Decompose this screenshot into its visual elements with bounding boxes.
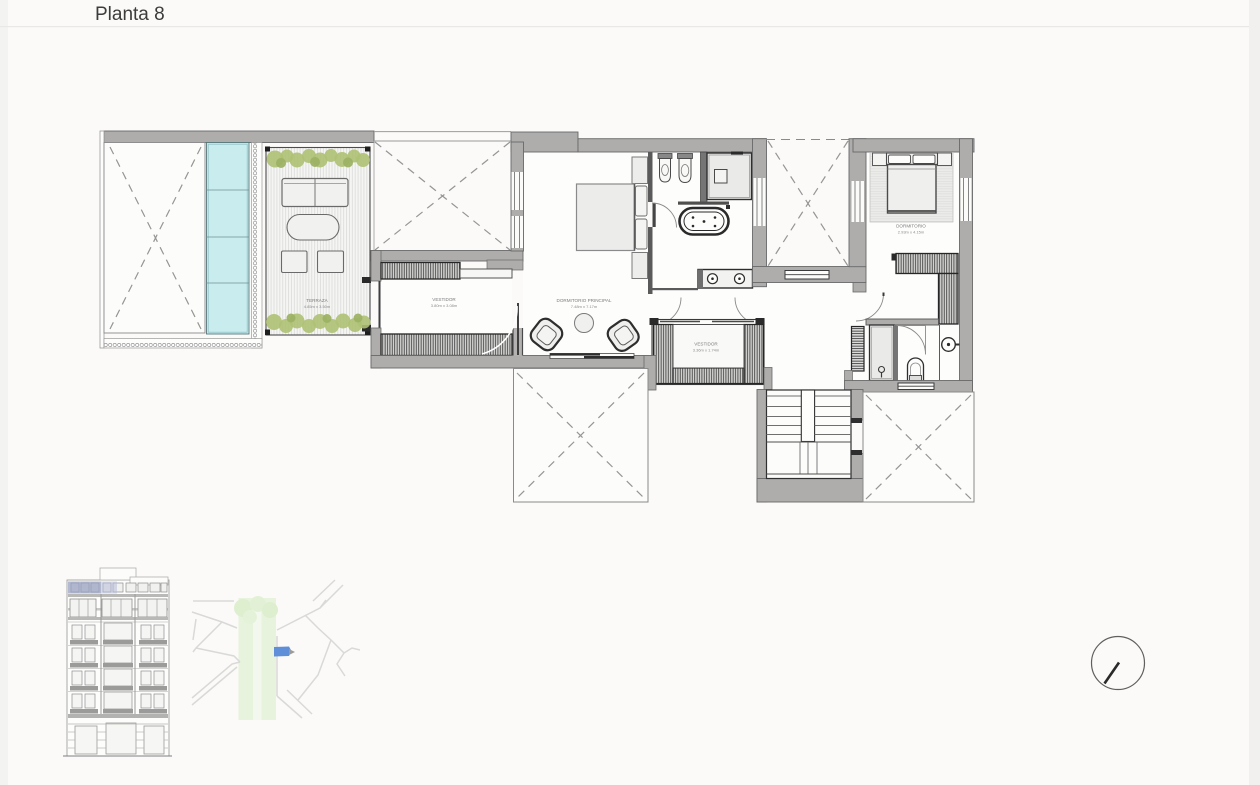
svg-text:3.80m x 3.08m: 3.80m x 3.08m <box>431 303 458 308</box>
svg-text:VESTIDOR: VESTIDOR <box>694 342 718 347</box>
svg-text:TERRAZA: TERRAZA <box>306 298 328 303</box>
svg-text:Planta 8: Planta 8 <box>95 4 165 25</box>
svg-text:DORMITORIO: DORMITORIO <box>896 224 926 229</box>
svg-text:4.85m x 3.50m: 4.85m x 3.50m <box>304 304 331 309</box>
svg-text:7.48m x 7.17m: 7.48m x 7.17m <box>571 304 598 309</box>
svg-text:2.93m x 4.15m: 2.93m x 4.15m <box>898 230 925 235</box>
svg-text:3.36m x 1.74m: 3.36m x 1.74m <box>693 348 720 353</box>
svg-text:DORMITORIO PRINCIPAL: DORMITORIO PRINCIPAL <box>557 298 612 303</box>
svg-text:VESTIDOR: VESTIDOR <box>432 297 456 302</box>
